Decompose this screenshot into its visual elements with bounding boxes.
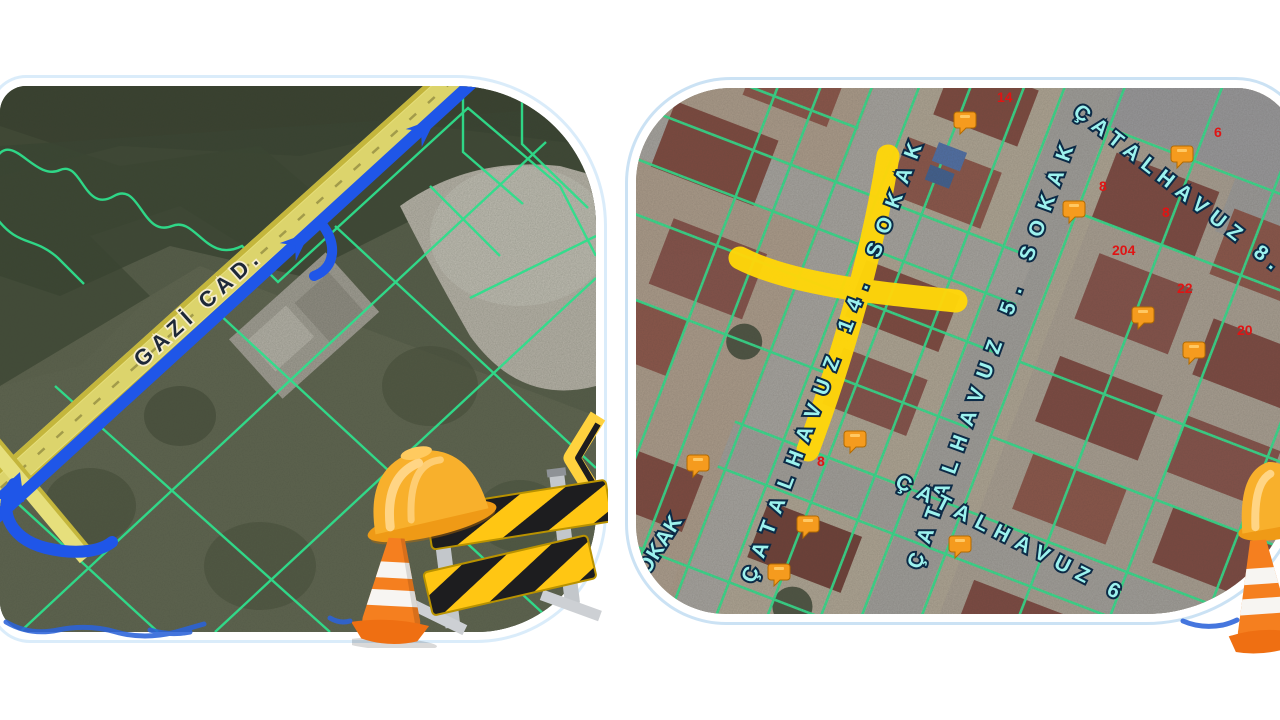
satellite-map-right: 14 6 8 8 204 22 20 8 ÇATALHAVUZ 14. SOKA… [636, 88, 1280, 614]
house-number: 8 [1162, 204, 1170, 220]
house-number: 20 [1237, 322, 1253, 338]
house-number: 6 [1214, 124, 1222, 140]
house-number: 22 [1177, 280, 1193, 296]
house-number: 8 [1099, 178, 1107, 194]
house-number: 8 [817, 453, 825, 469]
right-map-canvas: 14 6 8 8 204 22 20 8 ÇATALHAVUZ 14. SOKA… [636, 88, 1280, 614]
house-number: 204 [1112, 242, 1136, 258]
collage-stage: GAZİ CAD. [0, 0, 1280, 720]
house-number: 14 [997, 89, 1013, 105]
left-map-canvas: GAZİ CAD. [0, 86, 596, 632]
satellite-map-left: GAZİ CAD. [0, 86, 596, 632]
